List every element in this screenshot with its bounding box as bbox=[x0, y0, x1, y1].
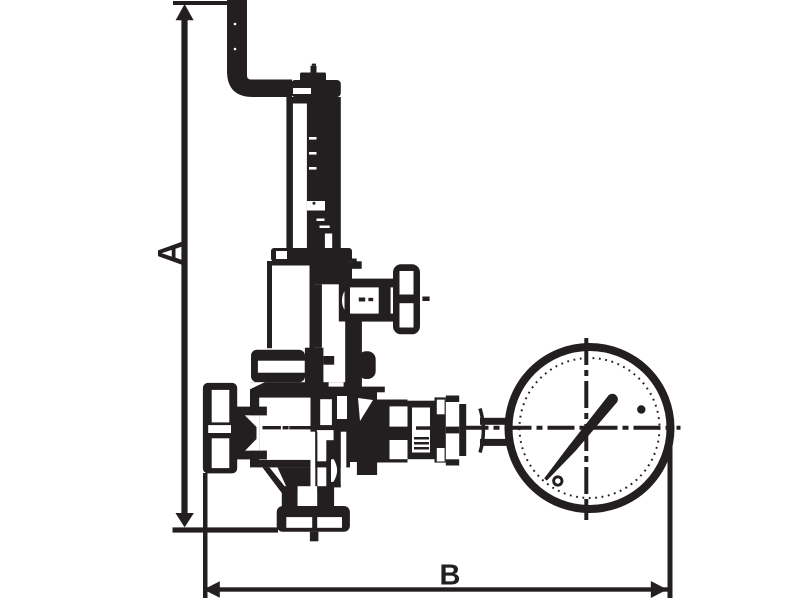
svg-text:A: A bbox=[152, 241, 190, 266]
svg-text:B: B bbox=[440, 560, 461, 592]
